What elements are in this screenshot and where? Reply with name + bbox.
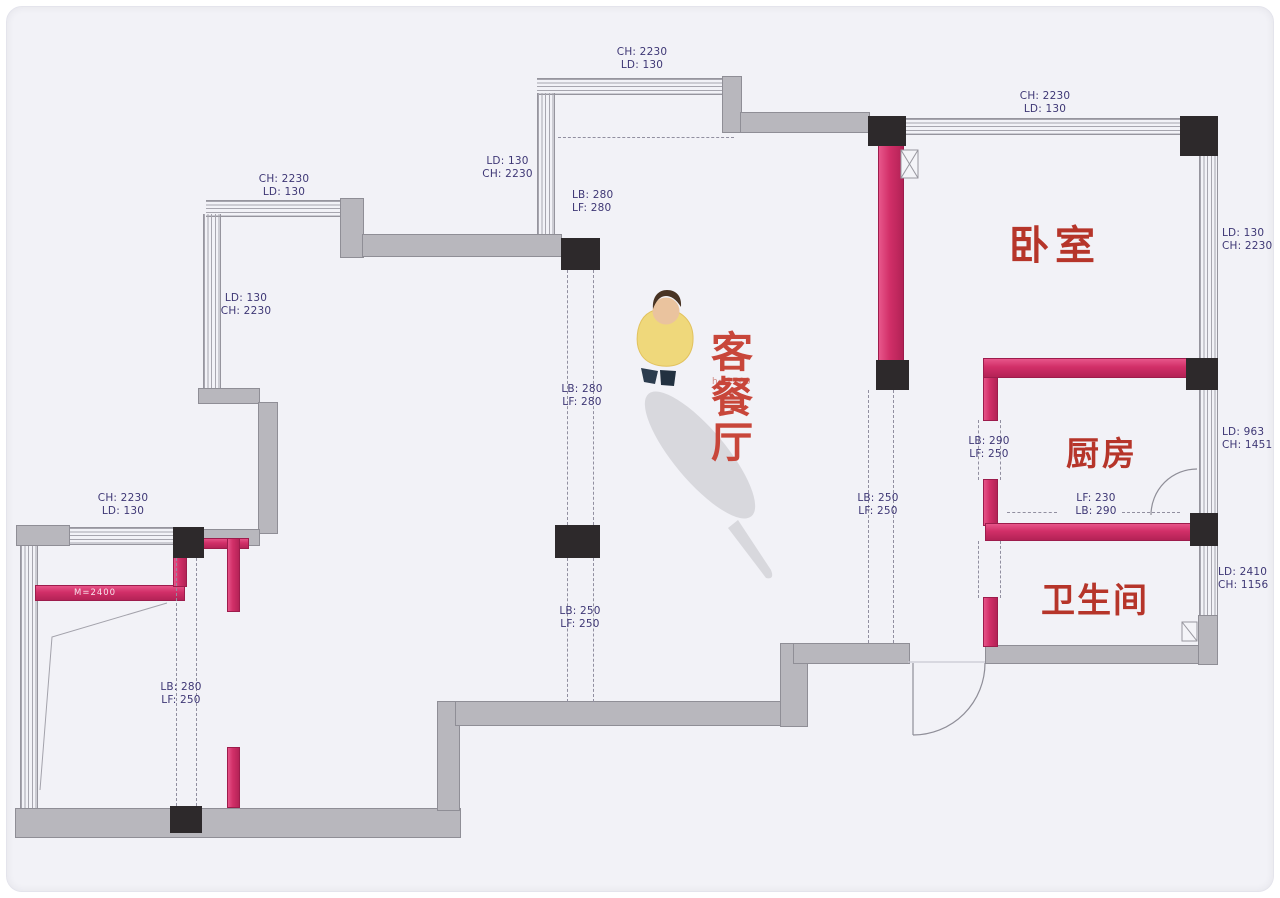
dim-label-bathroom-right: LD: 2410CH: 1156 xyxy=(1218,566,1278,591)
kitchen-door-swing-icon xyxy=(1151,469,1197,515)
dim-label-kitchen-right: LD: 963CH: 1451 xyxy=(1222,426,1280,451)
dim-label-beam-entry: LB: 250LF: 250 xyxy=(843,492,913,517)
living-char: 餐 xyxy=(711,376,753,420)
room-label-living-dining: 客 餐 厅 xyxy=(706,331,758,465)
dim-label-top-mid-window: CH: 2230LD: 130 xyxy=(597,46,687,71)
accent-wall-note: M=2400 xyxy=(74,588,116,598)
dim-label-beam-upper: LB: 280LF: 280 xyxy=(572,189,642,214)
dim-label-beam-lower: LB: 250LF: 250 xyxy=(545,605,615,630)
dim-label-kitchen-bottom: LF: 230LB: 290 xyxy=(1061,492,1131,517)
dim-label-bedroom-right: LD: 130CH: 2230 xyxy=(1222,227,1280,252)
dim-label-kitchen-door: LB: 290LF: 250 xyxy=(954,435,1024,460)
room-label-kitchen: 厨房 xyxy=(1052,427,1152,475)
dim-label-beam-mid: LB: 280LF: 280 xyxy=(547,383,617,408)
dim-label-top-left-window: CH: 2230LD: 130 xyxy=(239,173,329,198)
bathroom-fixture-icon xyxy=(1182,622,1197,641)
dim-label-left-beam: LB: 280LF: 250 xyxy=(146,681,216,706)
dim-label-mid-upper: LD: 130CH: 2230 xyxy=(470,155,545,180)
living-char: 厅 xyxy=(711,421,753,465)
room-label-bedroom: 卧室 xyxy=(975,213,1135,271)
dim-label-left-lower-window: CH: 2230LD: 130 xyxy=(78,492,168,517)
closet-symbol-icon xyxy=(901,150,918,178)
room-label-bathroom: 卫生间 xyxy=(1025,573,1165,622)
dim-label-left-upper: LD: 130CH: 2230 xyxy=(211,292,281,317)
dim-label-top-right-window: CH: 2230LD: 130 xyxy=(1000,90,1090,115)
living-char: 客 xyxy=(711,331,753,375)
entry-door-swing-icon xyxy=(908,662,985,735)
